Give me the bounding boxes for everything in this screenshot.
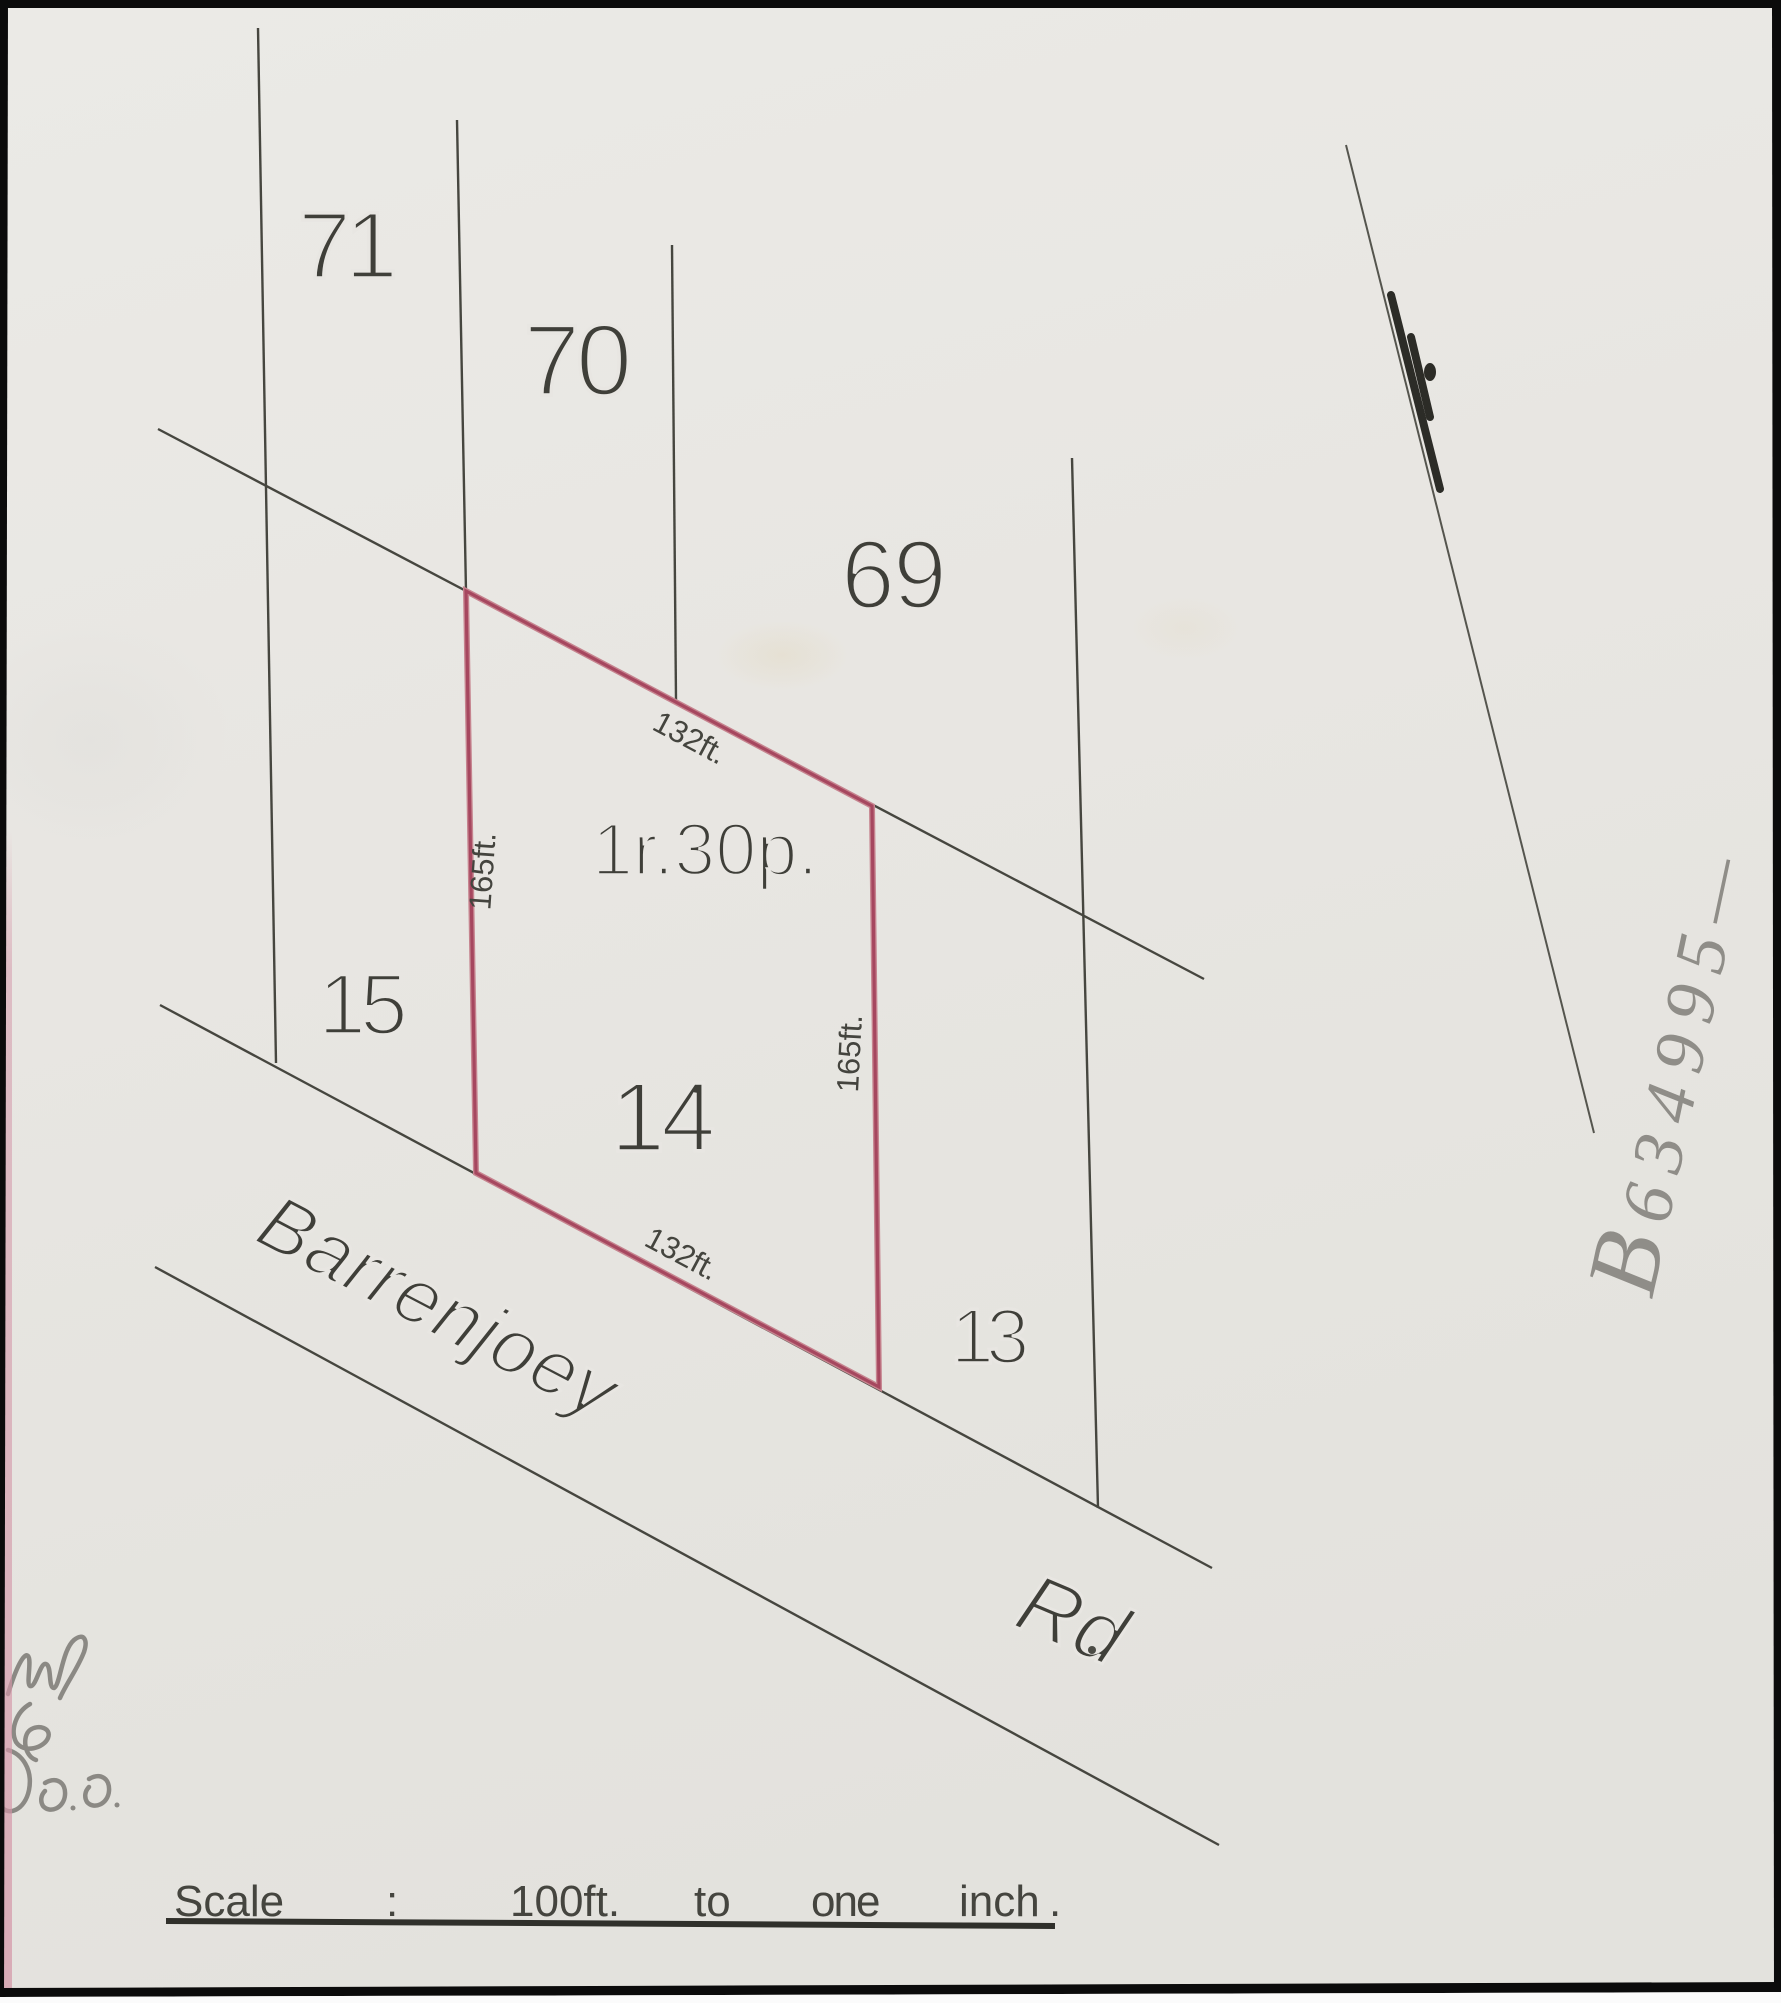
svg-text:15: 15 bbox=[318, 957, 405, 1053]
svg-text:to: to bbox=[694, 1877, 731, 1926]
svg-text:13: 13 bbox=[951, 1292, 1026, 1380]
svg-text:100ft.: 100ft. bbox=[510, 1877, 620, 1926]
svg-text:165ft.: 165ft. bbox=[830, 1014, 869, 1093]
svg-text:.: . bbox=[1049, 1877, 1061, 1926]
svg-text::: : bbox=[386, 1877, 398, 1926]
svg-text:1r.30p.: 1r.30p. bbox=[592, 808, 818, 891]
svg-text:inch: inch bbox=[959, 1877, 1040, 1926]
svg-text:70: 70 bbox=[524, 305, 629, 417]
svg-text:14: 14 bbox=[610, 1062, 713, 1172]
svg-text:one: one bbox=[811, 1877, 879, 1926]
svg-text:71: 71 bbox=[298, 193, 394, 299]
svg-text:165ft.: 165ft. bbox=[462, 831, 502, 911]
svg-text:69: 69 bbox=[841, 520, 945, 629]
